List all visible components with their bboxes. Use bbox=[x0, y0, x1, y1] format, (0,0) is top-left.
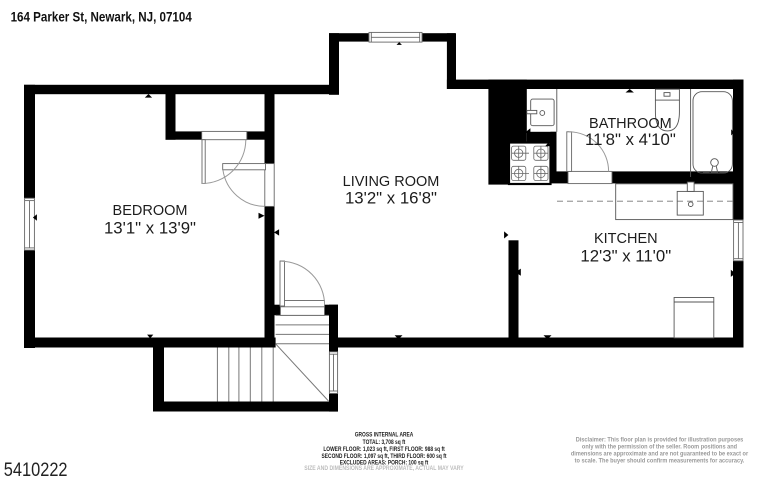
svg-text:SIZE AND DIMENSIONS ARE APPROX: SIZE AND DIMENSIONS ARE APPROXIMATE, ACT… bbox=[304, 466, 464, 473]
svg-text:TOTAL: 3,708 sq ft: TOTAL: 3,708 sq ft bbox=[363, 439, 406, 446]
svg-text:BEDROOM: BEDROOM bbox=[113, 203, 188, 219]
svg-text:LOWER FLOOR: 1,023 sq ft, FIRS: LOWER FLOOR: 1,023 sq ft, FIRST FLOOR: 9… bbox=[323, 447, 444, 454]
svg-text:GROSS INTERNAL AREA: GROSS INTERNAL AREA bbox=[355, 432, 414, 439]
svg-text:LIVING ROOM: LIVING ROOM bbox=[343, 174, 440, 190]
svg-text:164 Parker St, Newark, NJ, 071: 164 Parker St, Newark, NJ, 07104 bbox=[11, 10, 192, 25]
svg-text:12'3" x 11'0": 12'3" x 11'0" bbox=[580, 247, 671, 266]
svg-text:KITCHEN: KITCHEN bbox=[594, 231, 658, 247]
svg-text:11'8" x 4'10": 11'8" x 4'10" bbox=[585, 130, 676, 149]
svg-text:13'2" x 16'8": 13'2" x 16'8" bbox=[345, 189, 437, 208]
svg-text:5410222: 5410222 bbox=[4, 459, 68, 479]
svg-text:13'1" x 13'9": 13'1" x 13'9" bbox=[104, 218, 196, 237]
svg-text:to scale. The buyer should con: to scale. The buyer should confirm measu… bbox=[575, 457, 745, 465]
